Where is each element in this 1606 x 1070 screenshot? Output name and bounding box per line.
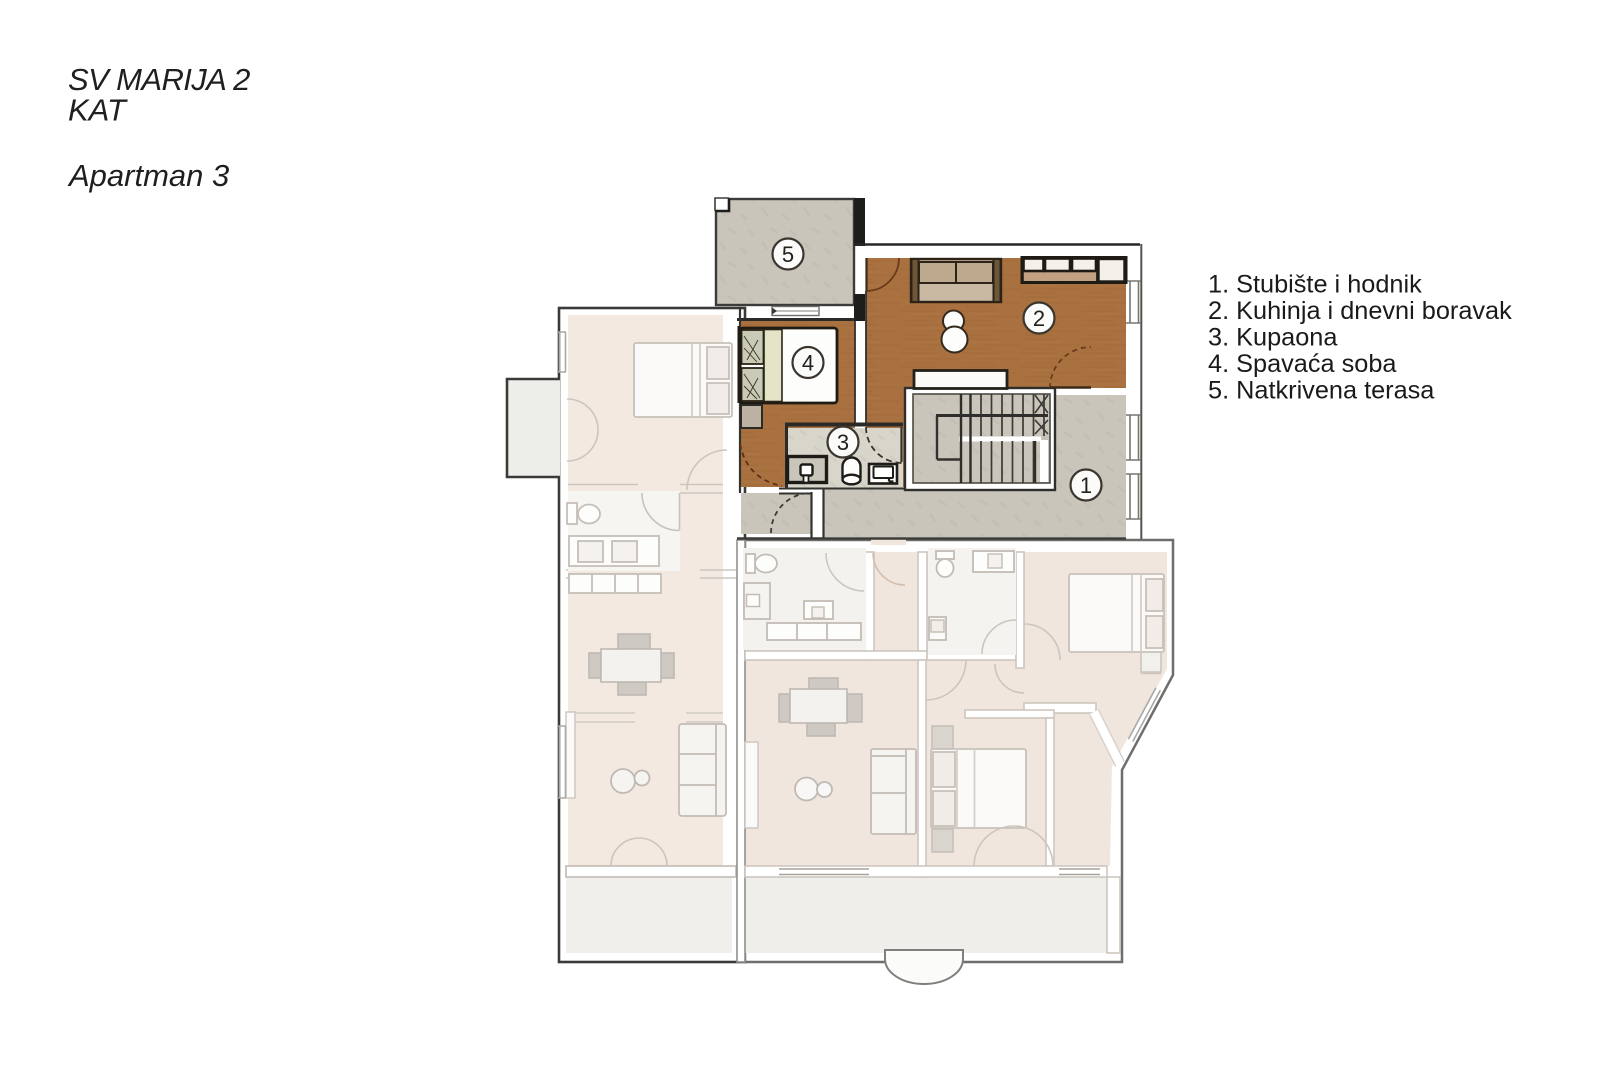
- svg-text:1: 1: [1080, 473, 1092, 498]
- svg-text:4: 4: [802, 351, 814, 376]
- svg-text:Apartman 3: Apartman 3: [67, 158, 229, 193]
- svg-text:2: 2: [1033, 306, 1045, 331]
- svg-text:3: 3: [837, 430, 849, 455]
- svg-text:4. Spavaća soba: 4. Spavaća soba: [1208, 350, 1397, 378]
- svg-text:2. Kuhinja i dnevni boravak: 2. Kuhinja i dnevni boravak: [1208, 297, 1512, 325]
- svg-text:KAT: KAT: [68, 93, 128, 128]
- svg-text:1. Stubište i hodnik: 1. Stubište i hodnik: [1208, 271, 1422, 299]
- svg-text:5. Natkrivena terasa: 5. Natkrivena terasa: [1208, 377, 1435, 405]
- svg-text:3. Kupaona: 3. Kupaona: [1208, 324, 1338, 352]
- svg-text:5: 5: [782, 242, 794, 267]
